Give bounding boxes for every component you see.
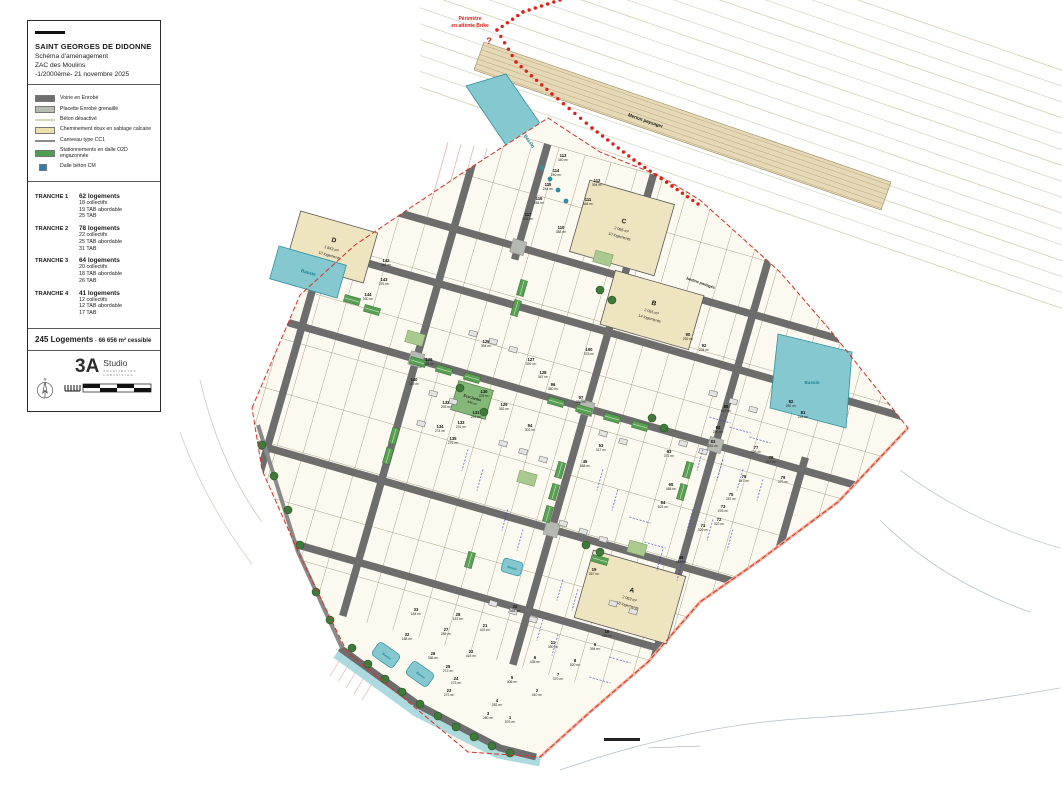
tranche-name: TRANCHE 2 (35, 225, 79, 252)
svg-text:346 m²: 346 m² (381, 263, 392, 267)
svg-text:410 m²: 410 m² (532, 693, 543, 697)
svg-text:464 m²: 464 m² (583, 202, 594, 206)
svg-text:415 m²: 415 m² (466, 654, 477, 658)
title-section: SAINT GEORGES DE DIDONNE Schéma d'aménag… (28, 21, 160, 85)
svg-text:317 m²: 317 m² (596, 448, 607, 452)
svg-text:423 m²: 423 m² (480, 628, 491, 632)
tranche-detail: 18 TAB abordable (79, 271, 122, 278)
legend-item: Cheminement doux en sablage calcaire (35, 127, 153, 134)
perimeter-note: en attente Brike (451, 23, 489, 29)
svg-text:302 m²: 302 m² (525, 428, 536, 432)
legend-label: Placette Enrobé grenaillé (60, 107, 118, 113)
svg-text:378 m²: 378 m² (584, 352, 595, 356)
legend-item: Caniveau type CC1 (35, 138, 153, 144)
svg-text:350 m²: 350 m² (548, 387, 559, 391)
svg-text:401 m²: 401 m² (523, 217, 534, 221)
tranche-detail: 19 TAB abordable (79, 207, 122, 214)
legend-label: Voirie en Enrobé (60, 96, 98, 102)
total-area: 66 656 m² cessible (99, 338, 152, 344)
svg-text:390 m²: 390 m² (548, 645, 559, 649)
tranche-detail: 20 collectifs (79, 264, 122, 271)
svg-text:281 m²: 281 m² (786, 404, 797, 408)
svg-text:375 m²: 375 m² (409, 382, 420, 386)
svg-text:285 m²: 285 m² (441, 632, 452, 636)
mini-scale-bar (604, 738, 640, 741)
svg-text:N: N (44, 377, 47, 381)
survey-mark (648, 746, 700, 748)
svg-text:322 m²: 322 m² (714, 522, 725, 526)
logo-mark: 3A (75, 357, 99, 376)
svg-text:427 m²: 427 m² (721, 409, 732, 413)
legend-item: Voirie en Enrobé (35, 95, 153, 102)
svg-text:188 m²: 188 m² (402, 637, 413, 641)
svg-text:371 m²: 371 m² (664, 454, 675, 458)
tranche-detail: 31 TAB (79, 246, 122, 253)
svg-text:394 m²: 394 m² (590, 647, 601, 651)
svg-text:293 m²: 293 m² (441, 405, 452, 409)
logo-name: Studio (103, 358, 153, 368)
tranche-detail: 26 TAB (79, 278, 122, 285)
legend-swatch-icon (35, 127, 55, 134)
commune-title: SAINT GEORGES DE DIDONNE (35, 42, 153, 51)
svg-text:280 m²: 280 m² (713, 430, 724, 434)
tranche-detail: 17 TAB (79, 310, 122, 317)
summary: 245 Logements - 66 656 m² cessible (28, 329, 160, 351)
svg-text:267 m²: 267 m² (589, 572, 600, 576)
svg-text:392 m²: 392 m² (526, 362, 537, 366)
legend-label: Cheminement doux en sablage calcaire (60, 127, 151, 133)
svg-text:320 m²: 320 m² (698, 528, 709, 532)
tranche-row: TRANCHE 162 logements18 collectifs19 TAB… (35, 193, 153, 220)
tranche-total: 78 logements (79, 225, 122, 232)
logo-tagline: ARCHITECTES URBANISTES (103, 369, 153, 377)
svg-text:520 m²: 520 m² (570, 663, 581, 667)
svg-text:272 m²: 272 m² (443, 669, 454, 673)
tranche-row: TRANCHE 441 logements12 collectifs12 TAB… (35, 290, 153, 317)
total-units: 245 Logements (35, 335, 93, 344)
svg-text:280 m²: 280 m² (483, 716, 494, 720)
tranche-detail: 12 TAB abordable (79, 303, 122, 310)
north-arrow-icon: N (35, 371, 55, 405)
legend-swatch-icon (35, 119, 55, 121)
title-block: SAINT GEORGES DE DIDONNE Schéma d'aménag… (27, 20, 161, 412)
svg-text:249 m²: 249 m² (798, 415, 809, 419)
svg-text:379 m²: 379 m² (778, 480, 789, 484)
svg-text:365 m²: 365 m² (510, 609, 521, 613)
scale-date: -1/2000ème- 21 novembre 2025 (35, 71, 153, 78)
svg-text:522 m²: 522 m² (658, 505, 669, 509)
svg-text:435 m²: 435 m² (602, 634, 613, 638)
svg-text:330 m²: 330 m² (363, 297, 374, 301)
svg-text:370 m²: 370 m² (553, 677, 564, 681)
perimeter-note: Périmètre (458, 16, 481, 22)
svg-text:244 m²: 244 m² (543, 187, 554, 191)
svg-text:272 m²: 272 m² (444, 693, 455, 697)
svg-text:388 m²: 388 m² (556, 230, 567, 234)
svg-text:484 m²: 484 m² (676, 560, 687, 564)
svg-text:187 m²: 187 m² (453, 617, 464, 621)
tranche-name: TRANCHE 4 (35, 290, 79, 317)
tranche-detail: 18 collectifs (79, 200, 122, 207)
svg-text:458 m²: 458 m² (666, 487, 677, 491)
legend-label: Stationnements en dalle O2D engazonnée (60, 148, 153, 160)
svg-text:292 m²: 292 m² (683, 337, 694, 341)
svg-text:386 m²: 386 m² (576, 400, 587, 404)
summary-sep: - (95, 338, 97, 344)
svg-text:282 m²: 282 m² (492, 703, 503, 707)
title-rule (35, 31, 65, 34)
svg-text:347 m²: 347 m² (739, 479, 750, 483)
tranche-total: 62 logements (79, 193, 122, 200)
svg-text:291 m²: 291 m² (471, 415, 482, 419)
logo-section: N 3A Studio ARCHITECTES URBANISTES (28, 351, 160, 411)
svg-text:231 m²: 231 m² (456, 425, 467, 429)
svg-text:340 m²: 340 m² (558, 158, 569, 162)
plan-sheet: A2 063 m²18 logementsB2 055 m²14 logemen… (0, 0, 1062, 793)
svg-text:394 m²: 394 m² (592, 183, 603, 187)
svg-text:284 m²: 284 m² (534, 201, 545, 205)
scale-bar (63, 382, 153, 394)
svg-text:240 m²: 240 m² (551, 173, 562, 177)
svg-text:274 m²: 274 m² (435, 429, 446, 433)
svg-text:394 m²: 394 m² (424, 362, 435, 366)
legend-item: Stationnements en dalle O2D engazonnée (35, 148, 153, 160)
tranche-detail: 25 TAB abordable (79, 239, 122, 246)
perimeter-question-mark: ? (486, 36, 492, 46)
svg-text:273 m²: 273 m² (451, 681, 462, 685)
svg-text:435 m²: 435 m² (530, 660, 541, 664)
legend: Voirie en EnrobéPlacette Enrobé grenaill… (28, 85, 160, 182)
svg-text:281 m²: 281 m² (708, 444, 719, 448)
project-name: ZAC des Moulins (35, 62, 153, 69)
legend-item: Béton désactivé (35, 117, 153, 123)
svg-text:367 m²: 367 m² (538, 375, 549, 379)
legend-swatch-icon (35, 140, 55, 142)
legend-label: Caniveau type CC1 (60, 138, 105, 144)
tranche-total: 41 logements (79, 290, 122, 297)
svg-text:576 m²: 576 m² (505, 720, 516, 724)
tranche-row: TRANCHE 364 logements20 collectifs18 TAB… (35, 257, 153, 284)
tranche-total: 64 logements (79, 257, 122, 264)
svg-text:382 m²: 382 m² (499, 407, 510, 411)
plan-subtitle: Schéma d'aménagement (35, 53, 153, 60)
tranche-detail: 25 TAB (79, 213, 122, 220)
tranche-name: TRANCHE 3 (35, 257, 79, 284)
svg-text:428 m²: 428 m² (751, 450, 762, 454)
svg-text:406 m²: 406 m² (507, 680, 518, 684)
legend-item: Placette Enrobé grenaillé (35, 106, 153, 113)
studio-logo: 3A Studio ARCHITECTES URBANISTES (61, 357, 153, 399)
svg-text:293 m²: 293 m² (718, 509, 729, 513)
tranche-detail: 22 collectifs (79, 232, 122, 239)
svg-text:294 m²: 294 m² (699, 348, 710, 352)
legend-label: Béton désactivé (60, 117, 97, 123)
svg-text:376 m²: 376 m² (379, 282, 390, 286)
svg-text:427 m²: 427 m² (766, 460, 777, 464)
legend-swatch-icon (39, 164, 47, 171)
legend-label: Dalle béton CM (60, 164, 96, 170)
svg-text:287 m²: 287 m² (726, 497, 737, 501)
svg-text:394 m²: 394 m² (481, 344, 492, 348)
tranche-detail: 12 collectifs (79, 297, 122, 304)
tranches: TRANCHE 162 logements18 collectifs19 TAB… (28, 182, 160, 329)
svg-text:184 m²: 184 m² (411, 612, 422, 616)
tranche-name: TRANCHE 1 (35, 193, 79, 220)
legend-item: Dalle béton CM (35, 164, 153, 171)
legend-swatch-icon (35, 106, 55, 113)
legend-swatch-icon (35, 150, 55, 157)
bassin-label: Bassin (804, 380, 819, 385)
svg-text:458 m²: 458 m² (580, 464, 591, 468)
legend-swatch-icon (35, 95, 55, 102)
svg-text:276 m²: 276 m² (448, 441, 459, 445)
svg-text:336 m²: 336 m² (428, 656, 439, 660)
tranche-row: TRANCHE 278 logements22 collectifs25 TAB… (35, 225, 153, 252)
